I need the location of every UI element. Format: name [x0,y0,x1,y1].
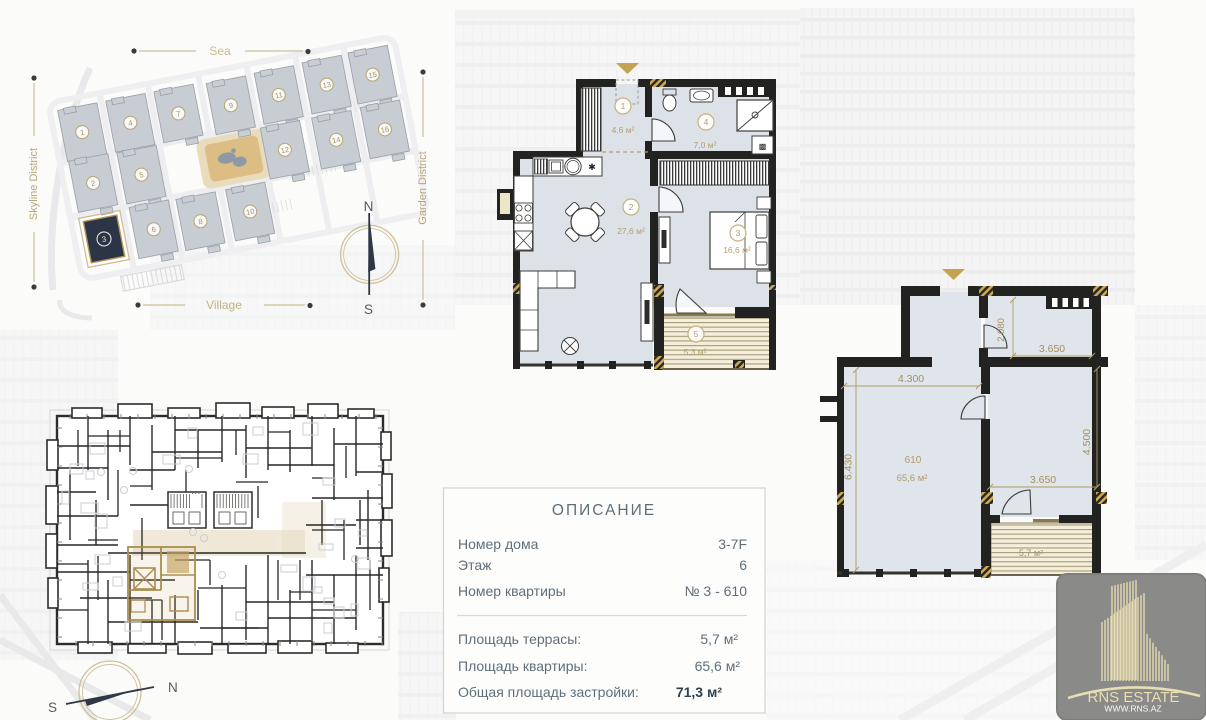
svg-text:6.430: 6.430 [843,454,855,480]
svg-text:6: 6 [739,557,747,573]
svg-text:Village: Village [206,298,242,312]
svg-text:▩: ▩ [759,142,767,151]
svg-text:Номер дома: Номер дома [458,536,539,552]
svg-text:12: 12 [280,145,290,155]
svg-text:3.650: 3.650 [1039,343,1065,355]
svg-text:27,6 м²: 27,6 м² [617,226,645,236]
svg-text:3: 3 [736,228,741,238]
svg-text:7,0 м²: 7,0 м² [694,140,717,150]
svg-text:65,6 м²: 65,6 м² [695,658,741,674]
svg-text:16: 16 [380,124,390,134]
svg-text:4.500: 4.500 [1081,429,1093,455]
svg-text:10: 10 [245,207,255,217]
svg-text:Skyline District: Skyline District [28,148,40,220]
svg-text:№ 3 - 610: № 3 - 610 [685,583,748,599]
svg-text:2: 2 [629,202,634,212]
svg-text:4.300: 4.300 [898,373,924,385]
svg-text:S: S [48,700,57,715]
svg-text:4,6 м²: 4,6 м² [612,125,635,135]
svg-text:WWW.RNS.AZ: WWW.RNS.AZ [1104,704,1161,714]
svg-text:610: 610 [905,455,922,466]
svg-text:71,3 м²: 71,3 м² [676,684,722,700]
svg-text:13: 13 [322,80,332,90]
svg-text:Номер квартиры: Номер квартиры [458,583,566,599]
svg-text:3.650: 3.650 [1030,474,1056,486]
svg-text:N: N [168,680,178,695]
svg-text:Garden District: Garden District [417,151,429,224]
svg-text:5,3 м²: 5,3 м² [684,347,707,357]
svg-text:ОПИСАНИЕ: ОПИСАНИЕ [552,502,656,519]
svg-text:4: 4 [704,117,709,127]
svg-text:Этаж: Этаж [458,557,492,573]
svg-text:16,6 м²: 16,6 м² [723,245,751,255]
svg-text:14: 14 [331,135,341,145]
svg-text:5,7 м²: 5,7 м² [1019,548,1043,558]
svg-text:S: S [364,302,373,317]
svg-text:1: 1 [621,101,626,111]
svg-text:15: 15 [368,70,378,80]
svg-text:2.080: 2.080 [996,318,1007,342]
svg-text:3-7F: 3-7F [718,536,747,552]
svg-text:✱: ✱ [588,162,596,172]
svg-text:N: N [364,199,374,214]
svg-text:5: 5 [694,329,699,339]
svg-text:Площадь террасы:: Площадь террасы: [458,631,581,647]
svg-text:Площадь квартиры:: Площадь квартиры: [458,658,587,674]
svg-text:65,6 м²: 65,6 м² [897,473,928,484]
svg-text:5,7 м²: 5,7 м² [700,631,738,647]
svg-text:Sea: Sea [209,44,231,58]
svg-text:Общая площадь застройки:: Общая площадь застройки: [458,684,639,700]
